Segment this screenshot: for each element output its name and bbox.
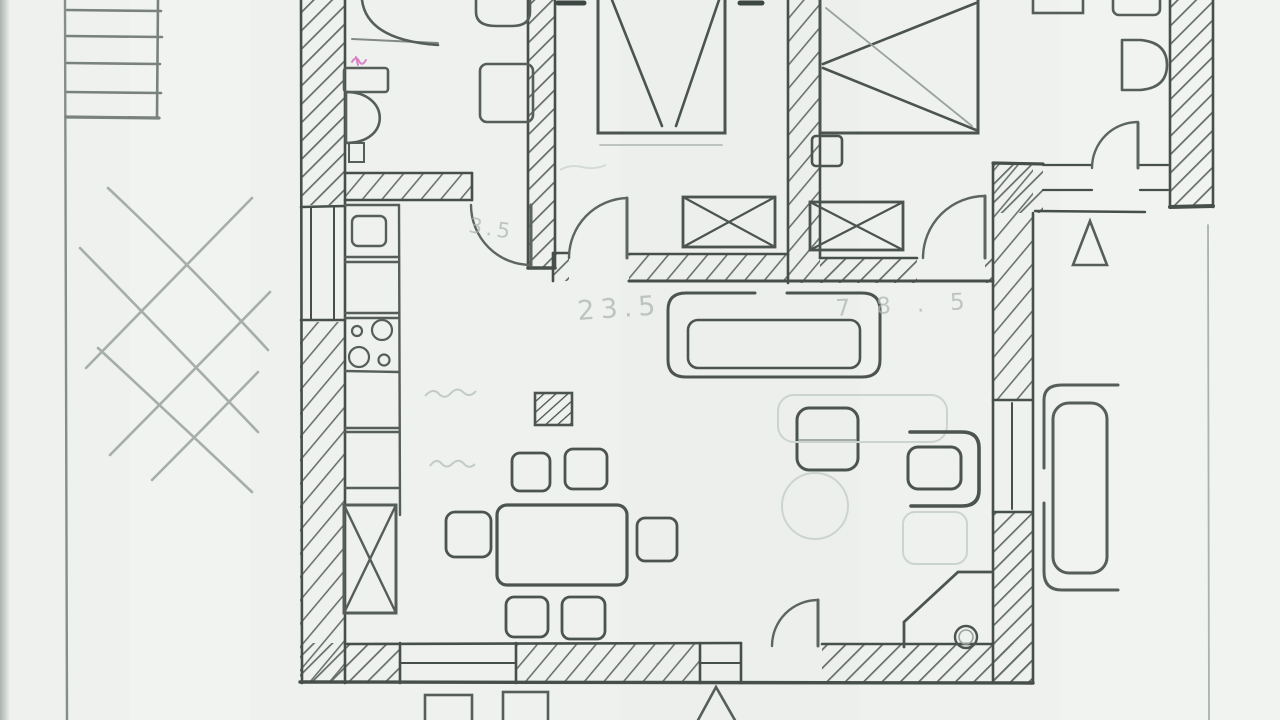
floorplan-sketch: 23.5 78.5 3.5 <box>0 0 1280 720</box>
stove-heater <box>535 393 572 425</box>
terrace-boundary-line <box>1208 225 1209 720</box>
dim-lounge-width: 23.5 <box>576 290 662 327</box>
scanned-floorplan-page: 23.5 78.5 3.5 <box>0 0 1280 720</box>
paper-texture <box>0 0 1280 720</box>
